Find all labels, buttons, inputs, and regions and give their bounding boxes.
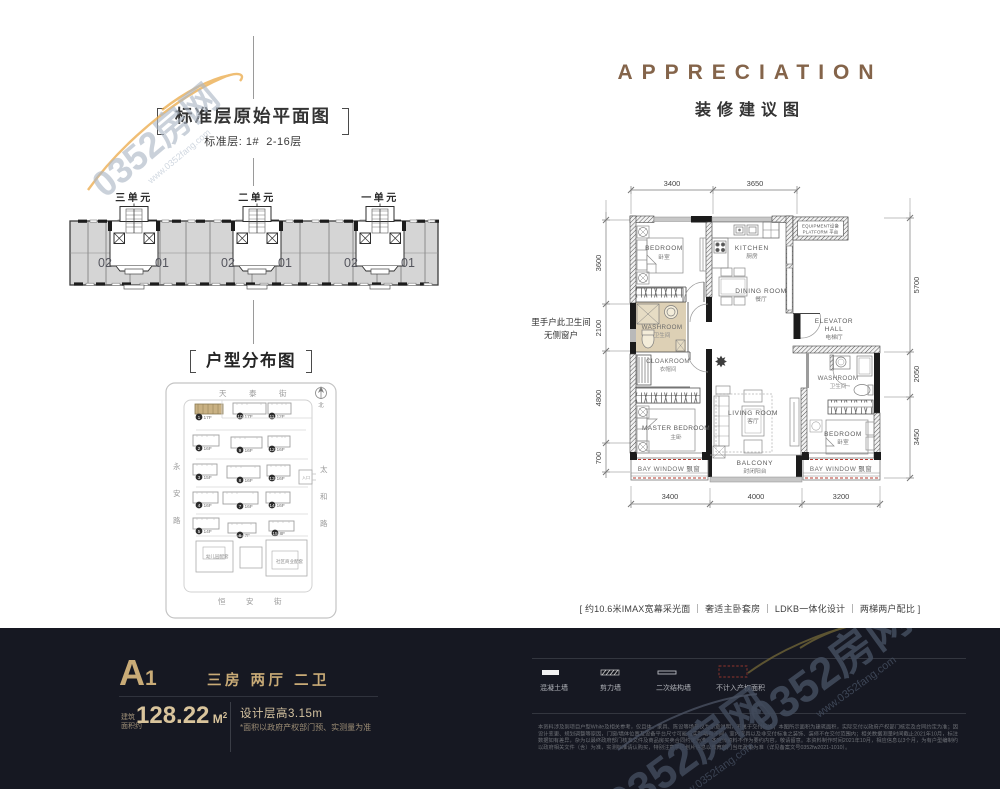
svg-text:WASHROOM: WASHROOM [818, 375, 859, 382]
svg-text:16F: 16F [277, 503, 285, 509]
svg-text:安: 安 [173, 488, 181, 498]
svg-text:主卧: 主卧 [670, 433, 682, 441]
svg-text:路: 路 [320, 518, 328, 528]
svg-text:三单元: 三单元 [115, 191, 153, 204]
svg-text:BAY WINDOW 飘窗: BAY WINDOW 飘窗 [638, 464, 700, 473]
svg-text:北: 北 [318, 401, 324, 409]
svg-text:12: 12 [269, 447, 275, 453]
svg-text:16F: 16F [277, 447, 285, 453]
svg-text:入口: 入口 [302, 475, 310, 480]
svg-text:BEDROOM: BEDROOM [824, 431, 862, 438]
svg-text:5: 5 [198, 529, 201, 535]
svg-text:16F: 16F [277, 476, 285, 482]
svg-text:9: 9 [239, 448, 242, 454]
svg-text:12F: 12F [277, 414, 285, 420]
svg-text:KITCHEN: KITCHEN [735, 245, 769, 252]
svg-text:16F: 16F [245, 504, 253, 510]
svg-text:4: 4 [198, 503, 201, 509]
svg-text:衣帽间: 衣帽间 [660, 365, 677, 373]
svg-text:3400: 3400 [664, 179, 681, 188]
svg-text:16F: 16F [204, 503, 212, 509]
svg-text:10: 10 [237, 414, 243, 420]
svg-text:封闭阳台: 封闭阳台 [743, 467, 766, 475]
svg-text:LIVING ROOM: LIVING ROOM [728, 410, 778, 417]
svg-text:3450: 3450 [912, 429, 921, 446]
svg-text:HALL: HALL [825, 326, 844, 333]
svg-text:3200: 3200 [833, 492, 850, 501]
svg-text:EQUIPMENT设备: EQUIPMENT设备 [802, 223, 839, 230]
svg-text:4800: 4800 [594, 390, 603, 407]
svg-text:里手户此卫生间: 里手户此卫生间 [531, 317, 591, 327]
svg-text:PLATFORM 平台: PLATFORM 平台 [803, 229, 839, 236]
svg-text:700: 700 [594, 452, 603, 465]
svg-text:泰: 泰 [249, 388, 257, 398]
svg-text:客厅: 客厅 [747, 417, 759, 425]
svg-text:太: 太 [320, 464, 328, 474]
svg-text:卫生间: 卫生间 [654, 331, 671, 339]
svg-text:3: 3 [198, 475, 201, 481]
svg-text:安: 安 [246, 596, 254, 606]
svg-text:恒: 恒 [218, 596, 226, 606]
svg-text:16F: 16F [204, 446, 212, 452]
svg-text:13: 13 [269, 476, 275, 482]
svg-text:2100: 2100 [594, 320, 603, 337]
svg-text:14: 14 [269, 503, 275, 509]
svg-text:17F: 17F [245, 414, 253, 420]
svg-text:WASHROOM: WASHROOM [642, 324, 683, 331]
svg-text:02: 02 [344, 256, 358, 270]
svg-text:厨房: 厨房 [746, 252, 758, 260]
svg-text:电梯厅: 电梯厅 [825, 333, 843, 341]
svg-text:16F: 16F [245, 478, 253, 484]
svg-text:餐厅: 餐厅 [755, 295, 767, 303]
svg-text:17F: 17F [204, 415, 212, 421]
svg-text:社区商业配套: 社区商业配套 [276, 558, 303, 565]
svg-text:CLOAKROOM: CLOAKROOM [646, 358, 690, 365]
svg-text:02: 02 [98, 256, 112, 270]
svg-text:一单元: 一单元 [361, 191, 399, 204]
svg-text:幼儿园配套: 幼儿园配套 [206, 553, 229, 560]
svg-text:卧室: 卧室 [837, 438, 849, 446]
svg-text:MASTER BEDROOM: MASTER BEDROOM [642, 425, 710, 432]
svg-text:7: 7 [239, 504, 242, 510]
svg-text:4000: 4000 [748, 492, 765, 501]
svg-text:天: 天 [219, 389, 227, 398]
svg-text:BAY WINDOW 飘窗: BAY WINDOW 飘窗 [810, 464, 872, 473]
svg-text:3400: 3400 [662, 492, 679, 501]
svg-text:卧室: 卧室 [658, 253, 670, 261]
svg-text:DINING ROOM: DINING ROOM [735, 288, 786, 295]
svg-text:BEDROOM: BEDROOM [645, 245, 683, 252]
svg-text:5700: 5700 [912, 277, 921, 294]
svg-text:和: 和 [320, 492, 328, 501]
svg-text:无侧窗户: 无侧窗户 [544, 330, 578, 340]
svg-text:街: 街 [279, 388, 287, 398]
svg-text:16F: 16F [245, 448, 253, 454]
svg-text:1: 1 [198, 415, 201, 421]
svg-text:2: 2 [198, 446, 201, 452]
svg-text:11: 11 [270, 414, 275, 420]
svg-text:8: 8 [239, 478, 242, 484]
svg-text:ELEVATOR: ELEVATOR [815, 318, 853, 325]
svg-text:01: 01 [155, 256, 169, 270]
svg-text:街: 街 [274, 596, 282, 606]
svg-text:14F: 14F [204, 529, 212, 535]
svg-text:15F: 15F [204, 475, 212, 481]
svg-text:2050: 2050 [912, 366, 921, 383]
svg-text:3600: 3600 [594, 255, 603, 272]
svg-text:永: 永 [173, 461, 181, 471]
svg-text:0352房网: 0352房网 [600, 680, 778, 789]
svg-text:3650: 3650 [747, 179, 764, 188]
svg-text:路: 路 [173, 515, 181, 525]
svg-text:02: 02 [221, 256, 235, 270]
svg-text:01: 01 [278, 256, 292, 270]
svg-text:二单元: 二单元 [238, 191, 276, 204]
svg-text:01: 01 [401, 256, 415, 270]
svg-text:BALCONY: BALCONY [737, 460, 774, 467]
svg-text:卫生间: 卫生间 [830, 382, 847, 390]
